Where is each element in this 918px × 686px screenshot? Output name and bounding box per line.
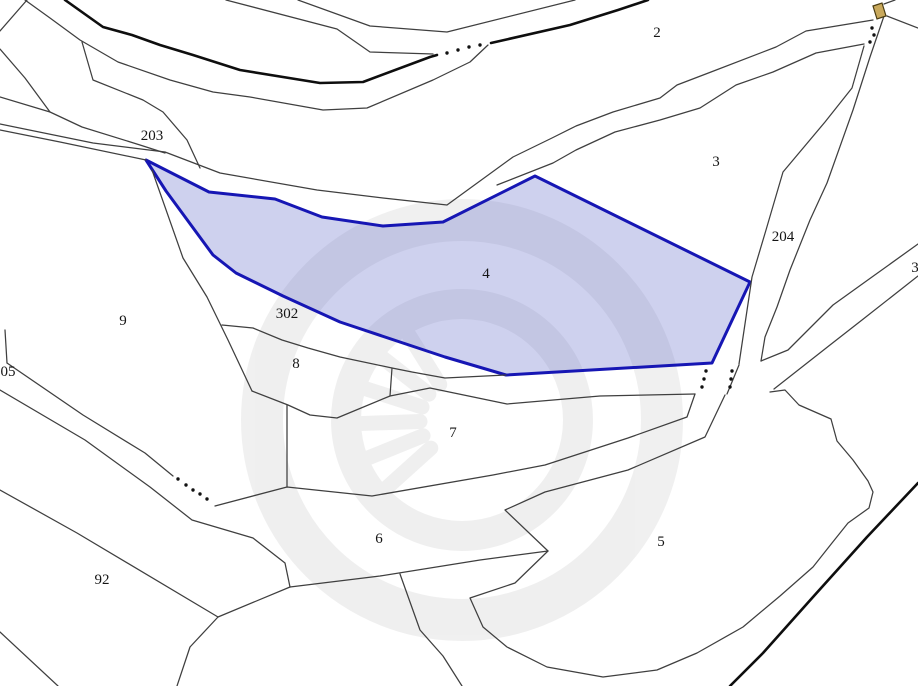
road-label-302: 302: [276, 306, 299, 322]
building-icon[interactable]: [873, 3, 886, 19]
building-symbol: [873, 3, 886, 19]
highlighted-parcel-4[interactable]: [146, 160, 750, 375]
parcel-label-4: 4: [482, 266, 490, 282]
parcel-label-2: 2: [653, 25, 661, 41]
parcel-label-5: 5: [657, 534, 665, 550]
parcel-label-3: 3: [712, 154, 720, 170]
parcel-label-9: 9: [119, 313, 127, 329]
parcel-label-05-left-edge: 05: [1, 364, 16, 380]
parcel-label-6: 6: [375, 531, 383, 547]
cadastral-map-svg: 2334567899205203204302: [0, 0, 918, 686]
map-viewport[interactable]: 2334567899205203204302: [0, 0, 918, 686]
road-label-204: 204: [772, 229, 795, 245]
parcel-label-92: 92: [95, 572, 110, 588]
road-label-203: 203: [141, 128, 164, 144]
parcel-label-7: 7: [449, 425, 457, 441]
parcel-label-8: 8: [292, 356, 300, 372]
parcel-4-polygon[interactable]: [146, 160, 750, 375]
parcel-label-3-right-edge: 3: [911, 260, 918, 276]
